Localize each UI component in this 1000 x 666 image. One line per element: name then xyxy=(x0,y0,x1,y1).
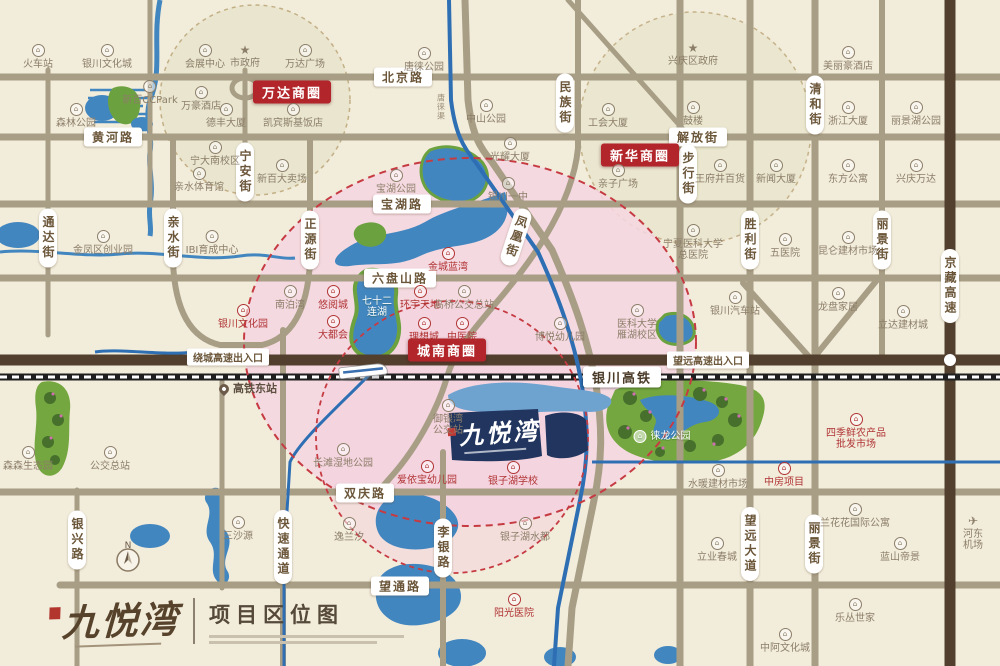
building-icon: ⌂ xyxy=(220,103,233,116)
brand-name: 九悦湾 xyxy=(61,597,179,645)
poi-marker: ⌂新百大卖场 xyxy=(257,159,307,185)
poi-label: 长滩湿地公园 xyxy=(313,458,373,469)
brand-block: 九悦湾 项目区位图 xyxy=(62,598,404,644)
brand-logo: 九悦湾 xyxy=(61,599,179,643)
building-icon: ⌂ xyxy=(343,517,356,530)
building-icon: ⌂ xyxy=(390,169,403,182)
poi-label: 银川一中 xyxy=(488,192,528,203)
building-icon: ⌂ xyxy=(193,167,206,180)
poi-marker: ★市政府 xyxy=(230,44,260,69)
building-icon: ⌂ xyxy=(97,230,110,243)
poi-label: 逸兰汐 xyxy=(334,532,364,543)
poi-label: 水暖建材市场 xyxy=(688,479,748,490)
poi-marker: ✈河东机场 xyxy=(960,515,987,551)
poi-marker: ⌂万达广场 xyxy=(285,44,325,70)
poi-marker: ⌂悠阅城 xyxy=(318,285,348,311)
highway-entrance-label: 绕城高速出入口 xyxy=(187,349,269,366)
poi-label: 立业春城 xyxy=(697,552,737,563)
building-icon: ⌂ xyxy=(480,99,493,112)
building-icon: ⌂ xyxy=(205,230,218,243)
poi-label: 银子湖学校 xyxy=(488,476,538,487)
poi-marker: ⌂兴庆万达 xyxy=(896,159,936,185)
poi-label: 蓝山帝景 xyxy=(880,552,920,563)
poi-marker: ⌂理想城 xyxy=(409,317,439,343)
building-icon: ⌂ xyxy=(770,159,783,172)
building-icon: ⌂ xyxy=(70,103,83,116)
poi-label: 宝湖公园 xyxy=(376,184,416,195)
poi-marker: ⌂御银湾 公交站 xyxy=(433,399,463,436)
building-icon: ⌂ xyxy=(199,44,212,57)
building-icon: ⌂ xyxy=(418,317,431,330)
poi-marker: 七十二 连湖 xyxy=(362,296,392,318)
poi-label: 会展中心 xyxy=(185,59,225,70)
poi-marker: ⌂亲子广场 xyxy=(598,164,638,190)
road-label-vertical: 快速通道 xyxy=(274,510,292,584)
building-icon: ⌂ xyxy=(842,159,855,172)
building-icon: ⌂ xyxy=(832,287,845,300)
poi-label: 兴庆万达 xyxy=(896,174,936,185)
poi-marker: ⌂银川一中 xyxy=(488,177,528,203)
poi-marker: ⌂立业春城 xyxy=(697,537,737,563)
building-icon: ⌂ xyxy=(554,317,567,330)
poi-marker: ⌂新闻大厦 xyxy=(756,159,796,185)
poi-marker: ⌂四季鲜农产品 批发市场 xyxy=(826,413,886,450)
building-icon: ⌂ xyxy=(602,103,615,116)
building-icon: ⌂ xyxy=(910,101,923,114)
poi-marker: ⌂大都会 xyxy=(318,315,348,341)
poi-label: 中阿文化城 xyxy=(760,643,810,654)
poi-marker: ⌂医科大学 雁湖校区 xyxy=(617,304,657,341)
building-icon: ⌂ xyxy=(442,399,455,412)
poi-label: 中医院 xyxy=(447,332,477,343)
poi-label: 四季鲜农产品 批发市场 xyxy=(826,428,886,450)
building-icon: ⌂ xyxy=(714,159,727,172)
poi-marker: ⌂银子湖学校 xyxy=(488,461,538,487)
poi-label: 银子湖水都 xyxy=(500,532,550,543)
poi-label: 火车站 xyxy=(23,59,53,70)
poi-label: 王府井百货 xyxy=(695,174,745,185)
map-title: 项目区位图 xyxy=(209,599,404,629)
building-icon: ⌂ xyxy=(287,103,300,116)
building-icon: ⌂ xyxy=(143,80,156,93)
poi-marker: ⌂爱依宝幼儿园 xyxy=(397,460,457,486)
building-icon: ⌂ xyxy=(442,247,455,260)
government-star-icon: ★ xyxy=(240,44,251,56)
poi-label: 悠阅城 xyxy=(318,300,348,311)
poi-label: 中房项目 xyxy=(764,477,804,488)
poi-marker: ⌂龙盘家居 xyxy=(818,287,858,313)
building-icon: ⌂ xyxy=(508,593,521,606)
poi-marker: ⌂凯宾斯基饭店 xyxy=(263,103,323,129)
poi-label: 森林公园 xyxy=(56,118,96,129)
poi-label: 新闻大厦 xyxy=(756,174,796,185)
poi-marker: ⌂东方公寓 xyxy=(828,159,868,185)
poi-marker: ⌂中房项目 xyxy=(764,462,804,488)
canal-label: 唐徕渠 xyxy=(436,94,447,121)
poi-label: 南泊湾 xyxy=(275,300,305,311)
poi-label: 河东机场 xyxy=(960,529,987,551)
building-icon: ⌂ xyxy=(778,462,791,475)
poi-label: 新百CCPark xyxy=(122,95,178,106)
building-icon: ⌂ xyxy=(612,164,625,177)
poi-marker: ⌂中医院 xyxy=(447,317,477,343)
building-icon: ⌂ xyxy=(32,44,45,57)
building-icon: ⌂ xyxy=(712,464,725,477)
poi-label: 市政府 xyxy=(230,58,260,69)
poi-label: 东方公寓 xyxy=(828,174,868,185)
poi-label: 丽景湖公园 xyxy=(891,116,941,127)
road-label: 黄河路 xyxy=(84,128,142,147)
poi-label: 金城蓝湾 xyxy=(428,262,468,273)
poi-label: 亲子广场 xyxy=(598,179,638,190)
building-icon: ⌂ xyxy=(195,86,208,99)
building-icon: ⌂ xyxy=(209,141,222,154)
building-icon: ⌂ xyxy=(894,537,907,550)
building-icon: ⌂ xyxy=(711,537,724,550)
district-label: 万达商圈 xyxy=(253,81,331,104)
building-icon: ⌂ xyxy=(507,461,520,474)
airport-icon: ✈ xyxy=(968,515,978,527)
poi-marker: ⌂南泊湾 xyxy=(275,285,305,311)
poi-marker: ⌂金凤区创业园 xyxy=(73,230,133,256)
poi-marker: ⌂三沙源 xyxy=(223,516,253,542)
poi-marker: ⌂阳光医院 xyxy=(494,593,534,619)
poi-marker: ⌂立达建材城 xyxy=(878,305,928,331)
road-label-vertical: 通达街 xyxy=(39,209,57,268)
poi-marker: ⌂中阿文化城 xyxy=(760,628,810,654)
building-icon: ⌂ xyxy=(910,159,923,172)
poi-label: 御银湾 公交站 xyxy=(433,414,463,436)
poi-label: 银川汽车站 xyxy=(710,306,760,317)
road-label-vertical: 亲水街 xyxy=(164,209,182,268)
building-icon: ⌂ xyxy=(456,317,469,330)
building-icon: ⌂ xyxy=(276,159,289,172)
poi-label: 大都会 xyxy=(318,330,348,341)
poi-marker: ⌂宁夏医科大学 总医院 xyxy=(663,224,723,261)
building-icon: ⌂ xyxy=(849,598,862,611)
poi-label: 万达广场 xyxy=(285,59,325,70)
poi-marker: ⌂工会大厦 xyxy=(588,103,628,129)
poi-marker: ⌂森林公园 xyxy=(56,103,96,129)
location-map: N 九悦湾 银川高铁 唐徕渠 黄河路北京路解放街宝湖路六盘山路双庆路望通路宁安街… xyxy=(0,0,1000,666)
poi-marker: ⌂美丽豪酒店 xyxy=(823,46,873,72)
road-label-vertical: 李银路 xyxy=(434,519,452,578)
poi-label: 乐丛世家 xyxy=(835,613,875,624)
poi-marker: ⌂宁大南校区 xyxy=(190,141,240,167)
poi-label: 七十二 连湖 xyxy=(362,296,392,318)
disclaimer-line xyxy=(209,635,404,638)
building-icon: ⌂ xyxy=(421,460,434,473)
poi-marker: ⌂水暖建材市场 xyxy=(688,464,748,490)
poi-label: 美丽豪酒店 xyxy=(823,61,873,72)
poi-label: 金凤区创业园 xyxy=(73,245,133,256)
poi-label: 银川文化园 xyxy=(218,319,268,330)
building-icon: ⌂ xyxy=(327,285,340,298)
poi-label: 兴庆区政府 xyxy=(668,56,718,67)
poi-label: 森森生态园 xyxy=(3,461,53,472)
poi-marker: ⌂宝湖公园 xyxy=(376,169,416,195)
building-icon: ⌂ xyxy=(729,291,742,304)
poi-label: 高桥公交总站 xyxy=(434,300,494,311)
poi-marker: ⌂银子湖水都 xyxy=(500,517,550,543)
poi-marker: ⌂丽景湖公园 xyxy=(891,101,941,127)
building-icon: ⌂ xyxy=(458,285,471,298)
poi-marker: ⌂银川文化园 xyxy=(218,304,268,330)
road-label: 双庆路 xyxy=(336,484,394,503)
poi-label: 唐徕公园 xyxy=(404,62,444,73)
poi-marker: 高铁东站 xyxy=(219,383,277,394)
poi-label: 德丰大厦 xyxy=(206,118,246,129)
poi-label: 中山公园 xyxy=(466,114,506,125)
road-label: 望通路 xyxy=(371,577,429,596)
building-icon: ⌂ xyxy=(299,44,312,57)
poi-label: 宁大南校区 xyxy=(190,156,240,167)
government-star-icon: ★ xyxy=(688,42,699,54)
building-icon: ⌂ xyxy=(687,224,700,237)
highway-entrance-label: 望远高速出入口 xyxy=(667,352,749,369)
poi-marker: ⌂浙江大厦 xyxy=(828,101,868,127)
poi-marker: ⌂会展中心 xyxy=(185,44,225,70)
road-label-vertical: 正源街 xyxy=(301,211,319,270)
building-icon: ⌂ xyxy=(504,137,517,150)
poi-label: 公交总站 xyxy=(90,461,130,472)
poi-label: 兰花花国际公寓 xyxy=(820,518,890,529)
poi-label: 光耀大厦 xyxy=(490,152,530,163)
poi-marker: ⌂长滩湿地公园 xyxy=(313,443,373,469)
poi-marker: ⌂王府井百货 xyxy=(695,159,745,185)
poi-marker: ⌂高桥公交总站 xyxy=(434,285,494,311)
building-icon: ⌂ xyxy=(849,503,862,516)
poi-label: 高铁东站 xyxy=(233,383,277,394)
poi-marker: ⌂兰花花国际公寓 xyxy=(820,503,890,529)
building-icon: ⌂ xyxy=(631,304,644,317)
poi-marker: ⌂昆仑建材市场 xyxy=(818,231,878,257)
brand-seal-icon xyxy=(49,607,60,619)
building-icon: ⌂ xyxy=(337,443,350,456)
poi-marker: ⌂光耀大厦 xyxy=(490,137,530,163)
poi-label: 三沙源 xyxy=(223,531,253,542)
building-icon: ⌂ xyxy=(897,305,910,318)
poi-marker: ⌂鼓楼 xyxy=(683,101,703,127)
building-icon: ⌂ xyxy=(104,446,117,459)
railway-label: 银川高铁 xyxy=(583,367,661,388)
poi-label: 立达建材城 xyxy=(878,320,928,331)
poi-marker: ⌂新百CCPark xyxy=(122,80,178,106)
poi-label: 阳光医院 xyxy=(494,608,534,619)
building-icon: ⌂ xyxy=(687,101,700,114)
building-icon: ⌂ xyxy=(842,231,855,244)
poi-marker: ⌂徕龙公园 xyxy=(634,430,691,443)
poi-marker: ⌂公交总站 xyxy=(90,446,130,472)
poi-label: 徕龙公园 xyxy=(651,431,691,442)
poi-label: 新百大卖场 xyxy=(257,174,307,185)
poi-label: IBI育成中心 xyxy=(186,245,239,256)
poi-label: 龙盘家居 xyxy=(818,302,858,313)
building-icon: ⌂ xyxy=(237,304,250,317)
poi-marker: ⌂逸兰汐 xyxy=(334,517,364,543)
poi-label: 宁夏医科大学 总医院 xyxy=(663,239,723,261)
poi-label: 银川文化城 xyxy=(82,59,132,70)
poi-label: 爱依宝幼儿园 xyxy=(397,475,457,486)
brand-divider xyxy=(193,598,195,644)
road-label-vertical: 凤凰街 xyxy=(498,206,533,268)
road-label-vertical: 银兴路 xyxy=(68,511,86,570)
building-icon: ⌂ xyxy=(101,44,114,57)
building-icon: ⌂ xyxy=(842,46,855,59)
building-icon: ⌂ xyxy=(779,628,792,641)
poi-marker: ⌂唐徕公园 xyxy=(404,47,444,73)
poi-marker: ⌂德丰大厦 xyxy=(206,103,246,129)
poi-label: 亲水体育馆 xyxy=(174,182,224,193)
poi-marker: ⌂森森生态园 xyxy=(3,446,53,472)
poi-marker: ★兴庆区政府 xyxy=(668,42,718,67)
disclaimer-line xyxy=(209,641,377,644)
road-label-vertical: 京藏高速 xyxy=(941,249,959,323)
building-icon: ⌂ xyxy=(634,430,647,443)
poi-marker: ⌂IBI育成中心 xyxy=(186,230,239,256)
poi-marker: ⌂金城蓝湾 xyxy=(428,247,468,273)
poi-marker: ⌂火车站 xyxy=(23,44,53,70)
building-icon: ⌂ xyxy=(850,413,863,426)
poi-marker: ⌂银川汽车站 xyxy=(710,291,760,317)
station-pin-icon xyxy=(217,381,231,395)
building-icon: ⌂ xyxy=(284,285,297,298)
poi-marker: ⌂中山公园 xyxy=(466,99,506,125)
poi-label: 五医院 xyxy=(770,248,800,259)
building-icon: ⌂ xyxy=(502,177,515,190)
map-title-block: 项目区位图 xyxy=(209,599,404,644)
poi-label: 工会大厦 xyxy=(588,118,628,129)
poi-label: 理想城 xyxy=(409,332,439,343)
poi-label: 博悦幼儿园 xyxy=(535,332,585,343)
building-icon: ⌂ xyxy=(519,517,532,530)
road-label-vertical: 清和街 xyxy=(806,76,824,135)
road-label-vertical: 胜利街 xyxy=(741,211,759,270)
building-icon: ⌂ xyxy=(414,285,427,298)
poi-label: 凯宾斯基饭店 xyxy=(263,118,323,129)
building-icon: ⌂ xyxy=(232,516,245,529)
road-label: 宝湖路 xyxy=(373,195,431,214)
poi-marker: ⌂博悦幼儿园 xyxy=(535,317,585,343)
poi-marker: ⌂乐丛世家 xyxy=(835,598,875,624)
building-icon: ⌂ xyxy=(842,101,855,114)
building-icon: ⌂ xyxy=(779,233,792,246)
road-label-vertical: 民族街 xyxy=(556,74,574,133)
poi-marker: ⌂五医院 xyxy=(770,233,800,259)
building-icon: ⌂ xyxy=(418,47,431,60)
project-name: 九悦湾 xyxy=(458,416,541,451)
building-icon: ⌂ xyxy=(22,446,35,459)
poi-label: 昆仑建材市场 xyxy=(818,246,878,257)
poi-label: 医科大学 雁湖校区 xyxy=(617,319,657,341)
map-labels-layer: 九悦湾 银川高铁 唐徕渠 黄河路北京路解放街宝湖路六盘山路双庆路望通路宁安街民族… xyxy=(0,0,1000,666)
poi-marker: ⌂蓝山帝景 xyxy=(880,537,920,563)
poi-marker: ⌂亲水体育馆 xyxy=(174,167,224,193)
poi-label: 浙江大厦 xyxy=(828,116,868,127)
poi-marker: ⌂银川文化城 xyxy=(82,44,132,70)
road-label-vertical: 望远大道 xyxy=(741,507,759,581)
building-icon: ⌂ xyxy=(327,315,340,328)
poi-label: 鼓楼 xyxy=(683,116,703,127)
